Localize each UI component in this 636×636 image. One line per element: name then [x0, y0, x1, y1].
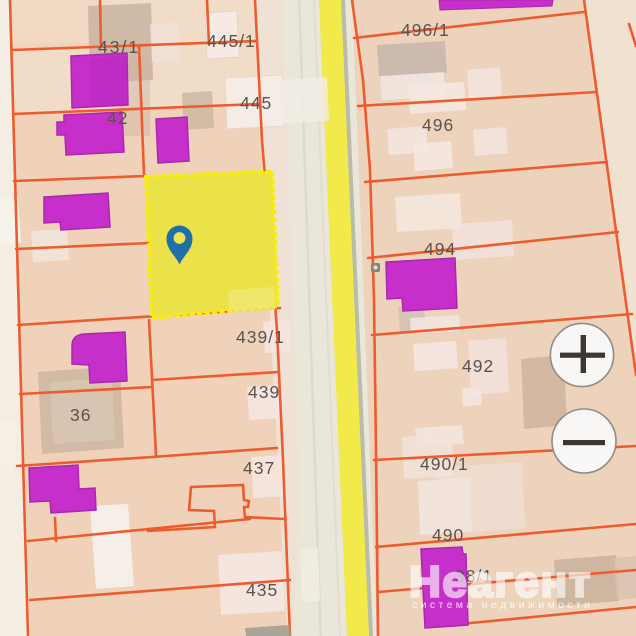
svg-text:система недвижимости: система недвижимости — [412, 599, 590, 611]
svg-text:435: 435 — [246, 580, 278, 600]
svg-text:439/1: 439/1 — [236, 327, 285, 347]
svg-text:494: 494 — [424, 239, 456, 259]
svg-text:36: 36 — [70, 405, 91, 425]
svg-text:496: 496 — [422, 115, 454, 135]
svg-text:490: 490 — [432, 525, 464, 545]
svg-text:42: 42 — [107, 108, 128, 128]
svg-text:43/1: 43/1 — [98, 37, 140, 57]
svg-text:490/1: 490/1 — [420, 454, 469, 474]
svg-text:439: 439 — [248, 382, 280, 402]
svg-text:437: 437 — [243, 458, 275, 478]
svg-text:445: 445 — [240, 93, 272, 113]
svg-text:492: 492 — [462, 356, 494, 376]
svg-text:496/1: 496/1 — [401, 20, 450, 40]
svg-text:445/1: 445/1 — [207, 31, 256, 51]
